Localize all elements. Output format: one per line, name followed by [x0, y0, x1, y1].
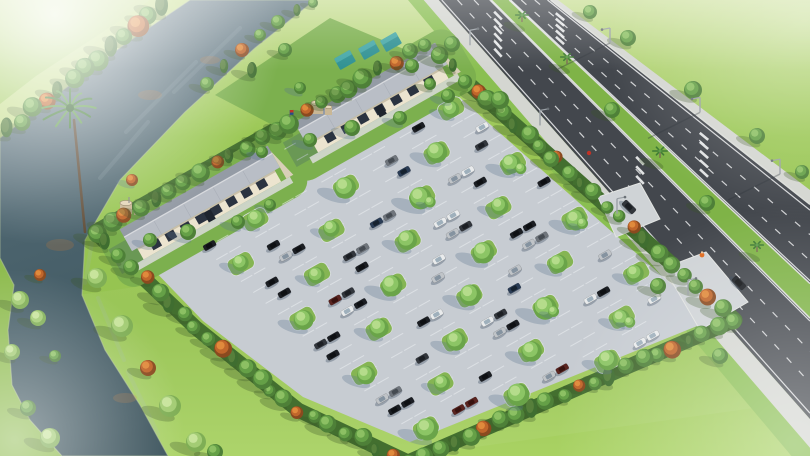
foliage-hi — [389, 450, 395, 456]
foliage-hi — [357, 430, 365, 438]
foliage-hi — [493, 199, 501, 207]
foliage-hi — [426, 79, 431, 84]
foliage-hi — [517, 164, 522, 169]
foliage-hi — [603, 202, 609, 208]
foliage-hi — [537, 299, 547, 309]
foliage-hi — [310, 411, 316, 417]
foliage-hi — [282, 116, 291, 125]
foliage-hi — [296, 312, 305, 321]
foliage-hi — [292, 407, 298, 413]
foliage-hi — [552, 256, 560, 264]
foliage-hi — [255, 371, 264, 380]
foliage-hi — [180, 308, 187, 315]
foliage-hi — [400, 232, 409, 241]
foliage-hi — [564, 167, 571, 174]
foliage-hi — [321, 417, 329, 425]
foliage-hi — [125, 261, 132, 268]
foliage-hi — [493, 93, 501, 101]
foliage-hi — [296, 83, 301, 88]
foliage-hi — [325, 222, 332, 229]
light-head — [547, 108, 550, 111]
foliage-hi — [587, 185, 595, 193]
foliage-hi — [145, 234, 151, 240]
foliage-hi — [629, 222, 635, 228]
foliage-hi — [545, 153, 552, 160]
foliage-hi — [258, 147, 263, 152]
foliage-hi — [476, 244, 486, 254]
foliage-hi — [419, 420, 429, 430]
flag-blue — [290, 113, 294, 115]
foliage-hi — [143, 272, 149, 278]
foliage-hi — [241, 361, 249, 369]
foliage-hi — [460, 76, 466, 82]
foliage-hi — [233, 216, 239, 222]
foliage-hi — [539, 394, 547, 402]
foliage-hi — [480, 92, 489, 101]
foliage-hi — [568, 212, 577, 221]
foliage-hi — [463, 287, 473, 297]
foliage-hi — [203, 333, 209, 339]
aerial-render-image — [0, 0, 810, 456]
foliage-hi — [277, 391, 285, 399]
foliage-hi — [188, 322, 194, 328]
foliage-hi — [701, 197, 708, 204]
foliage-hi — [478, 422, 485, 429]
foliage-hi — [189, 434, 198, 443]
foliage-hi — [90, 270, 99, 279]
flag-red — [290, 110, 294, 112]
foliage-hi — [510, 386, 520, 396]
fire-hydrant — [587, 151, 591, 155]
foliage-hi — [209, 446, 216, 453]
foliage-hi — [340, 428, 346, 434]
foliage-hi — [449, 333, 458, 342]
light-head — [624, 196, 627, 199]
foliage-hi — [523, 127, 531, 135]
foliage-hi — [638, 231, 645, 244]
foliage-hi — [372, 320, 381, 329]
foliage-hi — [235, 256, 242, 263]
foliage-hi — [509, 118, 515, 129]
foliage-hi — [443, 90, 449, 96]
foliage-hi — [113, 250, 120, 257]
foliage-hi — [473, 86, 480, 93]
foliage-hi — [494, 412, 502, 420]
foliage-hi — [371, 444, 376, 454]
foliage-hi — [182, 226, 189, 233]
foliage-hi — [154, 285, 162, 293]
foliage-hi — [266, 200, 271, 205]
foliage-hi — [606, 104, 613, 111]
foliage-hi — [217, 341, 225, 349]
foliage-hi — [550, 307, 555, 312]
foliage-hi — [310, 269, 317, 276]
scene-svg — [0, 0, 810, 456]
foliage-hi — [504, 156, 513, 165]
foliage-hi — [395, 112, 401, 118]
foliage-hi — [426, 198, 431, 203]
foliage-hi — [578, 219, 583, 224]
foliage-hi — [465, 430, 473, 438]
foliage-hi — [436, 377, 443, 384]
foliage-hi — [384, 277, 394, 287]
foliage-hi — [524, 343, 533, 352]
foliage-hi — [346, 122, 353, 129]
foliage-hi — [434, 442, 442, 450]
foliage-hi — [305, 134, 311, 140]
foliage-hi — [534, 141, 540, 147]
foliage-hi — [451, 436, 457, 447]
foliage-hi — [412, 189, 422, 199]
foliage-hi — [337, 179, 347, 189]
foliage-hi — [577, 178, 582, 187]
foliage-hi — [250, 212, 258, 220]
foliage-hi — [359, 368, 367, 376]
foliage-hi — [429, 144, 438, 153]
